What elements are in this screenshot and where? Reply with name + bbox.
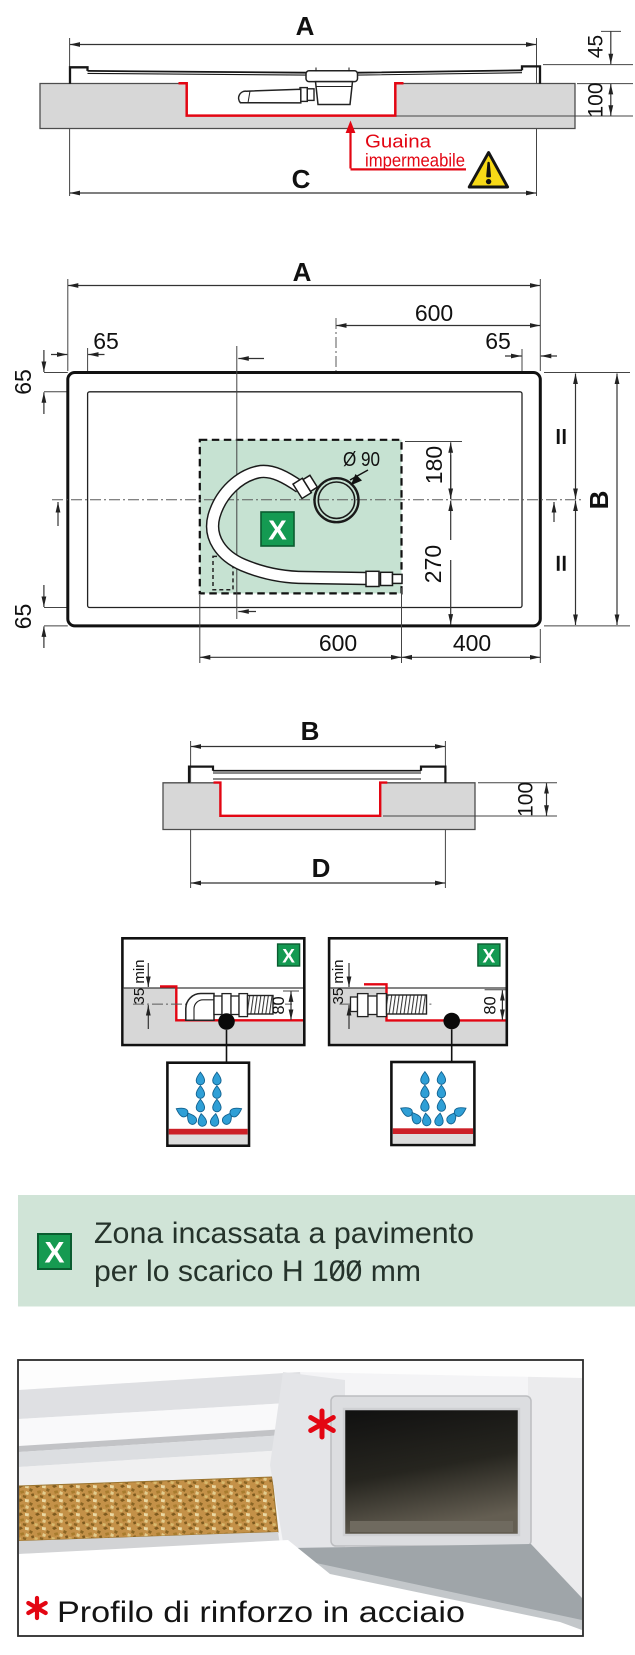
svg-text:B: B bbox=[301, 716, 320, 746]
svg-text:65: 65 bbox=[485, 328, 511, 354]
svg-text:100: 100 bbox=[515, 782, 538, 817]
svg-text:per lo scarico H 100 mm: per lo scarico H 100 mm bbox=[94, 1255, 421, 1288]
svg-text:X: X bbox=[44, 1237, 64, 1270]
svg-text:Guaina: Guaina bbox=[365, 132, 432, 152]
svg-text:Zona incassata a pavimento: Zona incassata a pavimento bbox=[94, 1217, 474, 1250]
svg-text:B: B bbox=[584, 491, 614, 510]
svg-text:C: C bbox=[292, 164, 311, 194]
svg-text:A: A bbox=[296, 11, 315, 41]
svg-text:Profilo di rinforzo in acciaio: Profilo di rinforzo in acciaio bbox=[57, 1596, 465, 1629]
svg-text:35 min: 35 min bbox=[131, 959, 148, 1004]
svg-text:65: 65 bbox=[10, 604, 36, 630]
svg-text:65: 65 bbox=[10, 369, 36, 395]
svg-text:45: 45 bbox=[585, 35, 608, 58]
svg-text:270: 270 bbox=[420, 545, 446, 583]
svg-text:35 min: 35 min bbox=[330, 959, 347, 1004]
svg-text:X: X bbox=[268, 515, 287, 546]
svg-text:600: 600 bbox=[319, 630, 357, 656]
svg-text:180: 180 bbox=[421, 446, 447, 484]
svg-text:Ø 90: Ø 90 bbox=[343, 449, 380, 471]
svg-text:80: 80 bbox=[270, 996, 288, 1014]
svg-text:65: 65 bbox=[93, 328, 119, 354]
svg-text:impermeabile: impermeabile bbox=[365, 151, 465, 171]
svg-text:X: X bbox=[483, 947, 496, 968]
svg-text:400: 400 bbox=[453, 630, 491, 656]
svg-text:D: D bbox=[312, 853, 331, 883]
svg-text:X: X bbox=[282, 947, 295, 968]
svg-text:80: 80 bbox=[481, 996, 499, 1014]
svg-text:100: 100 bbox=[585, 82, 608, 117]
svg-text:A: A bbox=[293, 257, 312, 287]
svg-text:600: 600 bbox=[415, 300, 453, 326]
